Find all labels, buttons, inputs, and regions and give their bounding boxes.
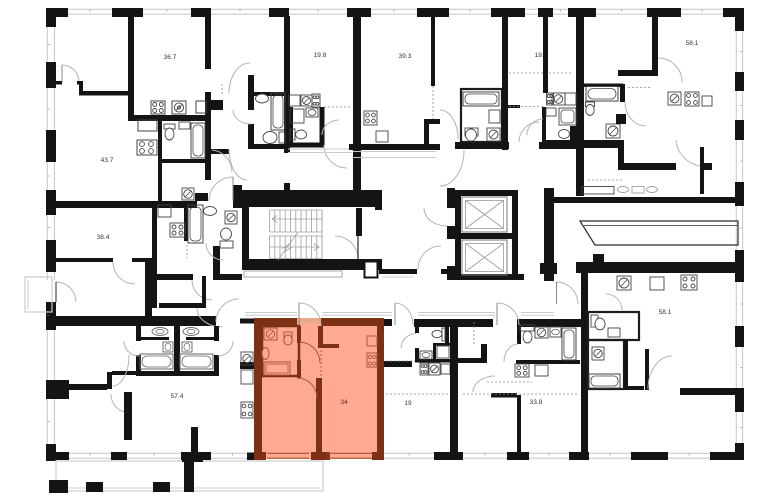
svg-text:36.7: 36.7 xyxy=(164,54,177,61)
svg-text:43.7: 43.7 xyxy=(101,157,114,164)
svg-text:58.1: 58.1 xyxy=(686,40,699,47)
svg-text:38.4: 38.4 xyxy=(97,234,110,241)
svg-text:39.3: 39.3 xyxy=(399,53,412,60)
svg-text:19: 19 xyxy=(404,400,412,407)
svg-text:58.1: 58.1 xyxy=(659,309,672,316)
svg-text:34: 34 xyxy=(340,399,348,406)
svg-text:57.4: 57.4 xyxy=(171,393,184,400)
svg-text:19.8: 19.8 xyxy=(314,52,327,59)
svg-text:33.8: 33.8 xyxy=(530,399,543,406)
